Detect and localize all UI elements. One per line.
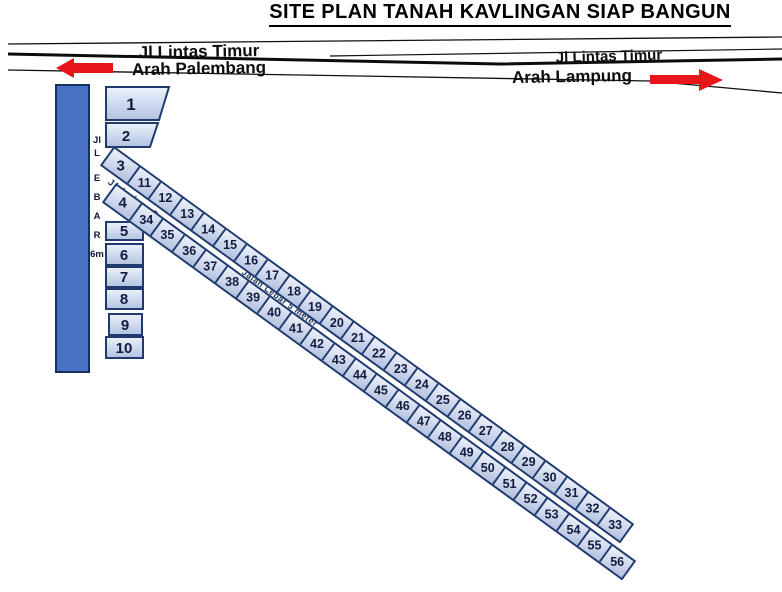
plot-shape-2 xyxy=(106,123,158,147)
arrow-right-icon xyxy=(650,69,723,91)
side-road-char: 6m xyxy=(88,250,106,260)
plot-number-8: 8 xyxy=(120,291,128,308)
plot-number-6: 6 xyxy=(120,247,128,264)
plot-number-1: 1 xyxy=(126,95,135,114)
plot-number-2: 2 xyxy=(122,128,130,145)
plot-number-42: 42 xyxy=(305,334,329,354)
site-plan-page: 125678910 SITE PLAN TANAH KAVLINGAN SIAP… xyxy=(0,0,782,592)
plot-number-33: 33 xyxy=(602,515,628,535)
plot-number-10: 10 xyxy=(116,340,133,357)
direction-label-palembang: Arah Palembang xyxy=(116,58,282,81)
plot-number-19: 19 xyxy=(303,297,327,317)
side-road-char: L xyxy=(88,149,106,159)
side-road-char: R xyxy=(88,231,106,241)
left-boundary-strip xyxy=(56,85,89,372)
arrow-left-icon xyxy=(56,58,113,78)
plot-number-7: 7 xyxy=(120,269,128,286)
road-name-right: Jl Lintas Timur xyxy=(546,46,672,66)
plot-number-9: 9 xyxy=(121,317,129,334)
plot-shape-1 xyxy=(106,87,169,120)
site-plan-canvas: 125678910 xyxy=(0,0,782,592)
side-road-char: A xyxy=(88,212,106,222)
side-road-char: E xyxy=(88,174,106,184)
direction-label-lampung: Arah Lampung xyxy=(506,66,638,88)
plot-number-5: 5 xyxy=(120,223,128,240)
plot-number-56: 56 xyxy=(604,552,630,572)
page-title: SITE PLAN TANAH KAVLINGAN SIAP BANGUN xyxy=(240,1,760,27)
side-road-char: Jl xyxy=(88,136,106,146)
